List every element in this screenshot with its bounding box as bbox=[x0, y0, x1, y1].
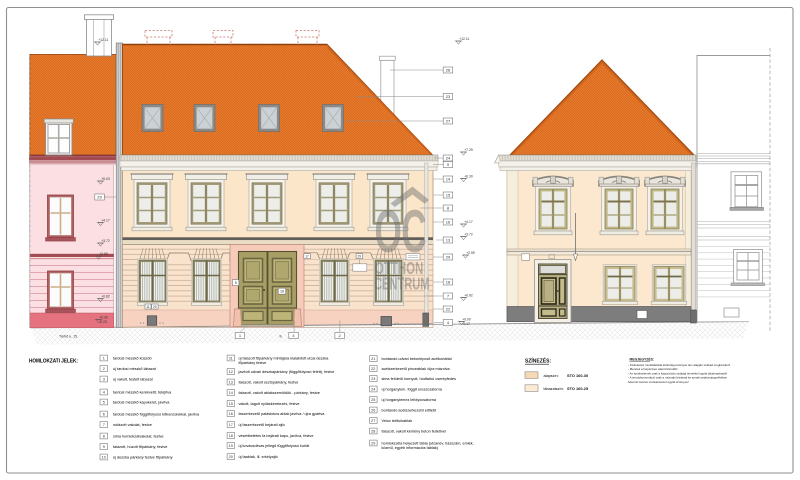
svg-text:falazott, vakolt ablakszemöldö: falazott, vakolt ablakszemöldök - párkán… bbox=[239, 391, 320, 395]
svg-text:acélszerkezetű pinceablak /újr: acélszerkezetű pinceablak /újra mázolva bbox=[382, 367, 451, 371]
svg-text:19: 19 bbox=[229, 444, 233, 448]
svg-text:q.: q. bbox=[280, 334, 283, 338]
svg-text:18: 18 bbox=[229, 434, 233, 438]
svg-text:vésettbetétes fa bejárati kapu: vésettbetétes fa bejárati kapu, javítva,… bbox=[239, 434, 314, 438]
svg-text:+2.66: +2.66 bbox=[99, 252, 108, 256]
svg-text:28: 28 bbox=[446, 67, 451, 72]
svg-text:Velux tetősíkablak: Velux tetősíkablak bbox=[382, 419, 413, 423]
svg-text:új vakolt, festett lábazat: új vakolt, festett lábazat bbox=[113, 377, 154, 381]
svg-text:OC: OC bbox=[375, 200, 427, 266]
svg-text:+2.59: +2.59 bbox=[466, 251, 475, 255]
svg-text:HOMLOKZATI JELEK:: HOMLOKZATI JELEK: bbox=[29, 359, 78, 365]
svg-text:+3.72: +3.72 bbox=[464, 232, 473, 236]
svg-text:új horganylem. függő ereszcsat: új horganylem. függő ereszcsatorna bbox=[382, 387, 443, 391]
svg-text:+0.82: +0.82 bbox=[101, 294, 110, 298]
svg-text:14: 14 bbox=[229, 391, 233, 395]
svg-text:5: 5 bbox=[235, 281, 237, 285]
svg-text:javított udvari deszkapárkány: javított udvari deszkapárkány (függőfoly… bbox=[238, 370, 335, 374]
svg-text:5: 5 bbox=[103, 400, 105, 404]
svg-text:2: 2 bbox=[103, 367, 105, 371]
svg-text:Térkő u. 15.: Térkő u. 15. bbox=[59, 335, 78, 339]
svg-text:nútázott vakolat, festve: nútázott vakolat, festve bbox=[113, 423, 152, 427]
svg-text:+12.11: +12.11 bbox=[459, 37, 469, 41]
svg-text:29: 29 bbox=[371, 441, 375, 445]
svg-text:29: 29 bbox=[153, 305, 157, 309]
svg-text:8: 8 bbox=[103, 434, 105, 438]
svg-text:+12.11: +12.11 bbox=[98, 38, 108, 42]
svg-text:10: 10 bbox=[102, 455, 106, 459]
svg-text:11: 11 bbox=[146, 305, 150, 309]
svg-text:+4.17: +4.17 bbox=[464, 220, 473, 224]
svg-text:29: 29 bbox=[97, 194, 102, 199]
svg-text:-0.17: -0.17 bbox=[462, 322, 470, 326]
svg-text:9: 9 bbox=[103, 445, 105, 449]
svg-text:29: 29 bbox=[446, 254, 451, 259]
svg-text:28: 28 bbox=[371, 429, 375, 433]
svg-text:20: 20 bbox=[229, 455, 233, 459]
svg-text:16: 16 bbox=[229, 412, 233, 416]
svg-text:CENTRUM: CENTRUM bbox=[374, 275, 430, 294]
svg-text:+6.30: +6.30 bbox=[464, 174, 473, 178]
svg-text:új horganylemez lefolyócsatorn: új horganylemez lefolyócsatorna bbox=[382, 398, 437, 402]
svg-text:21: 21 bbox=[371, 357, 375, 361]
svg-text:15: 15 bbox=[446, 192, 451, 197]
svg-text:14: 14 bbox=[446, 176, 451, 181]
svg-text:25: 25 bbox=[371, 398, 375, 402]
svg-text:+4.17: +4.17 bbox=[101, 218, 110, 222]
svg-text:22: 22 bbox=[446, 306, 451, 311]
svg-text:4: 4 bbox=[103, 390, 105, 394]
svg-text:tardosi mészkő küszöb: tardosi mészkő küszöb bbox=[113, 356, 152, 360]
svg-text:17: 17 bbox=[229, 423, 233, 427]
svg-text:vakolt, tagolt nyíláskeretezés: vakolt, tagolt nyíláskeretezés, festve bbox=[239, 402, 300, 406]
svg-text:+5.03: +5.03 bbox=[101, 177, 110, 181]
svg-text:+7.25: +7.25 bbox=[464, 148, 473, 152]
svg-text:17: 17 bbox=[305, 255, 309, 259]
svg-text:felsorolt összes munkarésszel: felsorolt összes munkarésszel együtt érv… bbox=[628, 380, 689, 384]
svg-text:új faszerkezetű bejárati ajtó: új faszerkezetű bejárati ajtó bbox=[239, 423, 285, 427]
svg-text:új deszka párkány festve főpár: új deszka párkány festve főpárkány bbox=[113, 455, 173, 459]
svg-text:11: 11 bbox=[229, 356, 233, 360]
svg-text:új faablak, ill. erkélyajtó: új faablak, ill. erkélyajtó bbox=[239, 455, 278, 459]
svg-text:-0.23: -0.23 bbox=[99, 320, 107, 324]
svg-text:faszerkezetű palástokos ablak: faszerkezetű palástokos ablak javítva / … bbox=[239, 412, 326, 416]
svg-text:falazott, húzott főpárkány, fe: falazott, húzott főpárkány, festve bbox=[113, 445, 167, 449]
svg-text:tardosi mészkő függőfolyosó kő: tardosi mészkő függőfolyosó kőkonzolokka… bbox=[113, 412, 200, 416]
svg-text:új kovácsoltvas jellegű függőf: új kovácsoltvas jellegű függőfolyosó kor… bbox=[239, 444, 311, 448]
svg-text:sima felületű hornyolt, hódfar: sima felületű hornyolt, hódfarkú cserépf… bbox=[382, 377, 457, 381]
svg-text:13: 13 bbox=[446, 237, 451, 242]
svg-text:sima homlokzatvakolat, festve: sima homlokzatvakolat, festve bbox=[113, 434, 164, 438]
svg-text:27: 27 bbox=[446, 118, 451, 123]
svg-text:22: 22 bbox=[371, 367, 375, 371]
svg-text:lábazatszín:: lábazatszín: bbox=[544, 387, 564, 391]
svg-text:26: 26 bbox=[371, 408, 375, 412]
svg-text:15: 15 bbox=[229, 402, 233, 406]
svg-text:MEGJEGYZÉS:: MEGJEGYZÉS: bbox=[630, 357, 655, 362]
svg-text:6: 6 bbox=[103, 412, 105, 416]
svg-text:13: 13 bbox=[229, 380, 233, 384]
svg-text:23: 23 bbox=[371, 377, 375, 381]
svg-text:bontandó acélszerkezetű előtet: bontandó acélszerkezetű előtető bbox=[382, 408, 437, 412]
svg-text:23: 23 bbox=[446, 94, 451, 99]
svg-text:falazott, vakolt osztópárkány,: falazott, vakolt osztópárkány, festve bbox=[239, 380, 299, 384]
svg-text:alapszín:: alapszín: bbox=[544, 374, 559, 378]
svg-text:18: 18 bbox=[446, 279, 451, 284]
svg-text:+0.92: +0.92 bbox=[464, 293, 473, 297]
svg-text:1: 1 bbox=[103, 356, 105, 360]
svg-text:12: 12 bbox=[229, 370, 233, 374]
svg-text:tardosi mészkő kerékvető, felú: tardosi mészkő kerékvető, felújítva bbox=[113, 390, 172, 394]
svg-text:29: 29 bbox=[358, 255, 362, 259]
svg-text:STO 160-30: STO 160-30 bbox=[567, 373, 588, 378]
svg-text:bontandó udvari betonlépcső ac: bontandó udvari betonlépcső acélkorlátta… bbox=[382, 357, 452, 361]
svg-text:3: 3 bbox=[103, 377, 105, 381]
svg-text:tardosi mészkő kapukeret, javí: tardosi mészkő kapukeret, javítva bbox=[113, 400, 170, 404]
svg-text:24: 24 bbox=[446, 155, 451, 160]
svg-text:16: 16 bbox=[446, 219, 451, 224]
svg-text:7: 7 bbox=[103, 423, 105, 427]
svg-text:+0.30: +0.30 bbox=[99, 315, 108, 319]
svg-text:STO 160-25: STO 160-25 bbox=[567, 386, 589, 391]
svg-text:falazott, vakolt kémény beton: falazott, vakolt kémény beton fedkővel bbox=[382, 429, 447, 433]
svg-text:24: 24 bbox=[371, 387, 375, 391]
svg-text:+0.00: +0.00 bbox=[462, 317, 471, 321]
svg-text:új tardosi mészkő lábazat: új tardosi mészkő lábazat bbox=[113, 367, 157, 371]
svg-text:+3.72: +3.72 bbox=[101, 239, 110, 243]
svg-text:27: 27 bbox=[371, 419, 375, 423]
svg-text:SZÍNEZÉS:: SZÍNEZÉS: bbox=[525, 357, 551, 365]
svg-text:18: 18 bbox=[280, 290, 284, 294]
